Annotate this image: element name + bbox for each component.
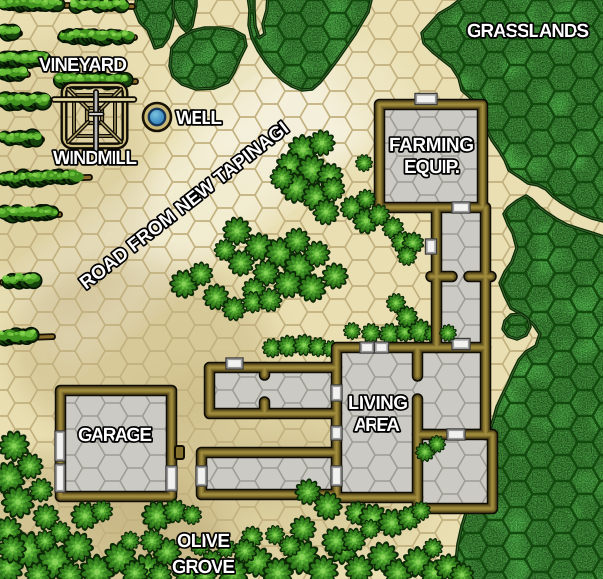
svg-text:LIVING: LIVING	[348, 393, 408, 414]
svg-text:VINEYARD: VINEYARD	[39, 55, 127, 76]
svg-text:GRASSLANDS: GRASSLANDS	[467, 21, 589, 42]
svg-text:EQUIP.: EQUIP.	[404, 157, 460, 178]
svg-text:WELL: WELL	[176, 108, 222, 129]
svg-text:GARAGE: GARAGE	[78, 425, 152, 446]
svg-text:WINDMILL: WINDMILL	[53, 148, 137, 169]
svg-text:GROVE: GROVE	[172, 557, 235, 578]
svg-text:AREA: AREA	[354, 415, 400, 436]
svg-text:FARMING: FARMING	[389, 135, 474, 156]
svg-text:OLIVE: OLIVE	[177, 531, 230, 552]
